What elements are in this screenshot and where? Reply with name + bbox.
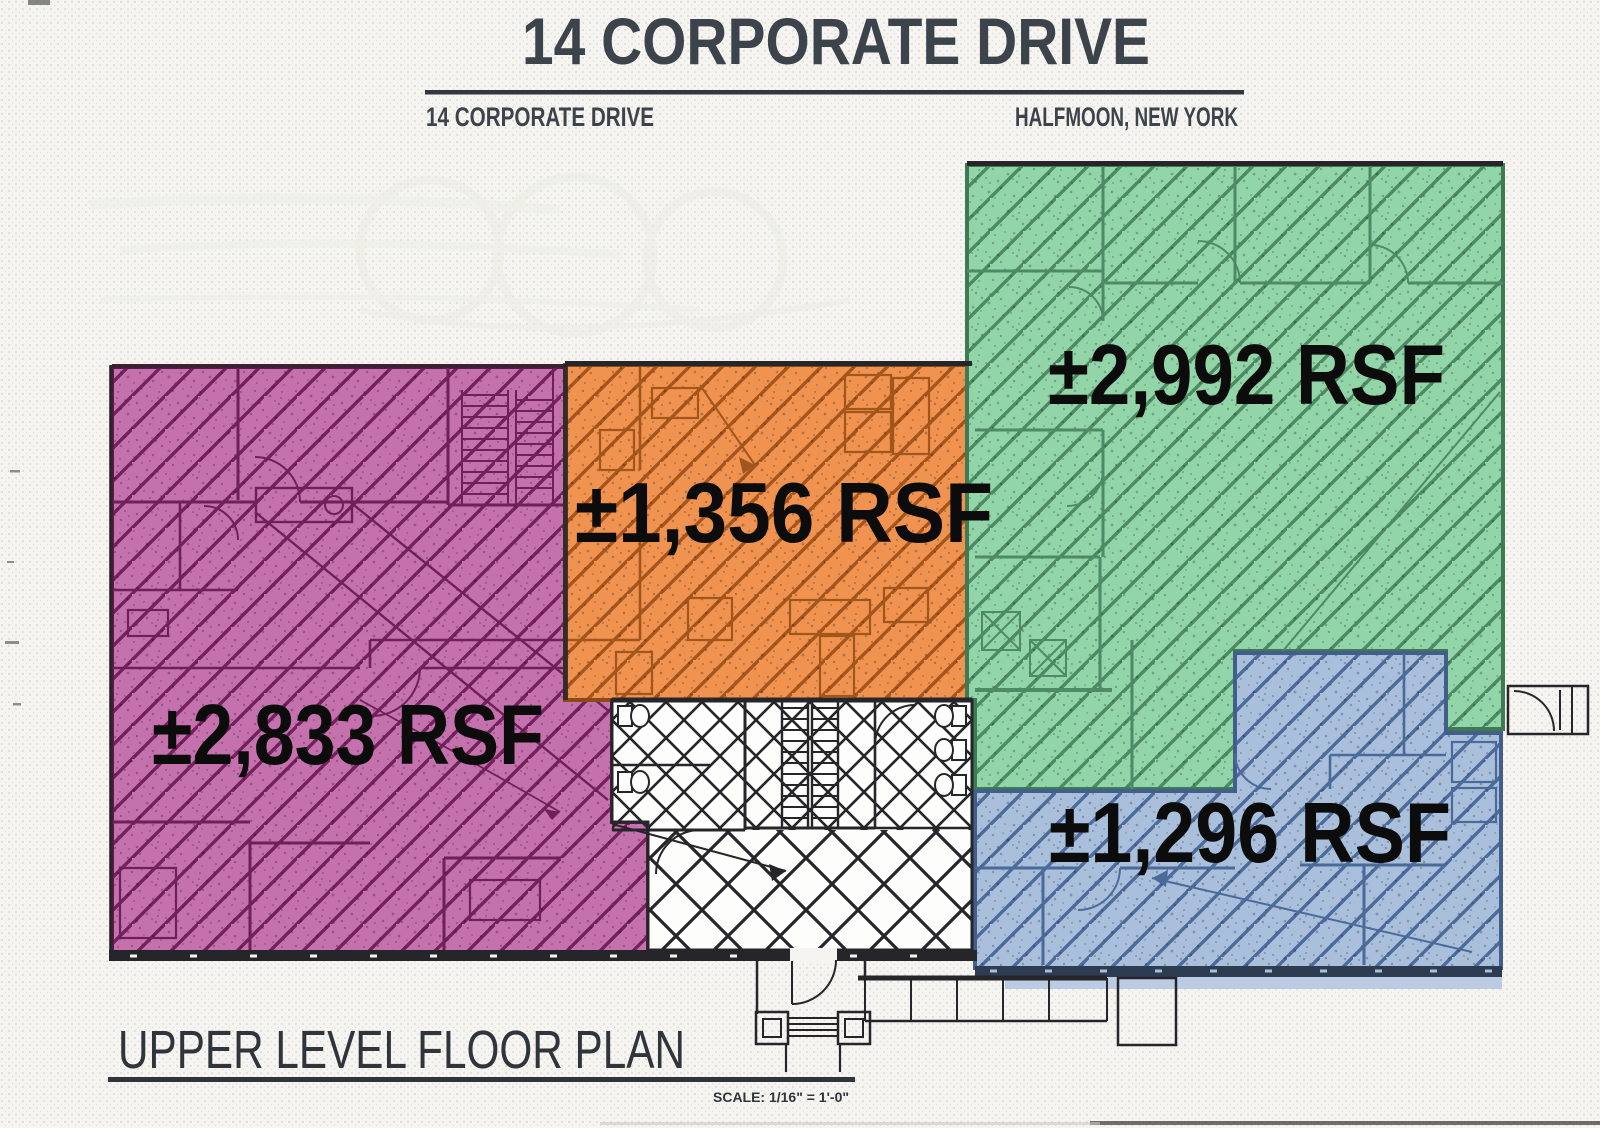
- svg-text:±2,992 RSF: ±2,992 RSF: [1048, 328, 1445, 423]
- svg-text:±1,296 RSF: ±1,296 RSF: [1049, 786, 1451, 881]
- svg-text:UPPER LEVEL FLOOR PLAN: UPPER LEVEL FLOOR PLAN: [118, 1020, 685, 1080]
- svg-text:HALFMOON, NEW YORK: HALFMOON, NEW YORK: [1015, 102, 1238, 132]
- svg-text:±1,356 RSF: ±1,356 RSF: [575, 466, 993, 561]
- svg-text:SCALE: 1/16" = 1'-0": SCALE: 1/16" = 1'-0": [713, 1090, 849, 1105]
- svg-text:±2,833 RSF: ±2,833 RSF: [152, 688, 544, 783]
- svg-text:14 CORPORATE DRIVE: 14 CORPORATE DRIVE: [522, 4, 1150, 78]
- svg-text:14 CORPORATE DRIVE: 14 CORPORATE DRIVE: [426, 102, 654, 132]
